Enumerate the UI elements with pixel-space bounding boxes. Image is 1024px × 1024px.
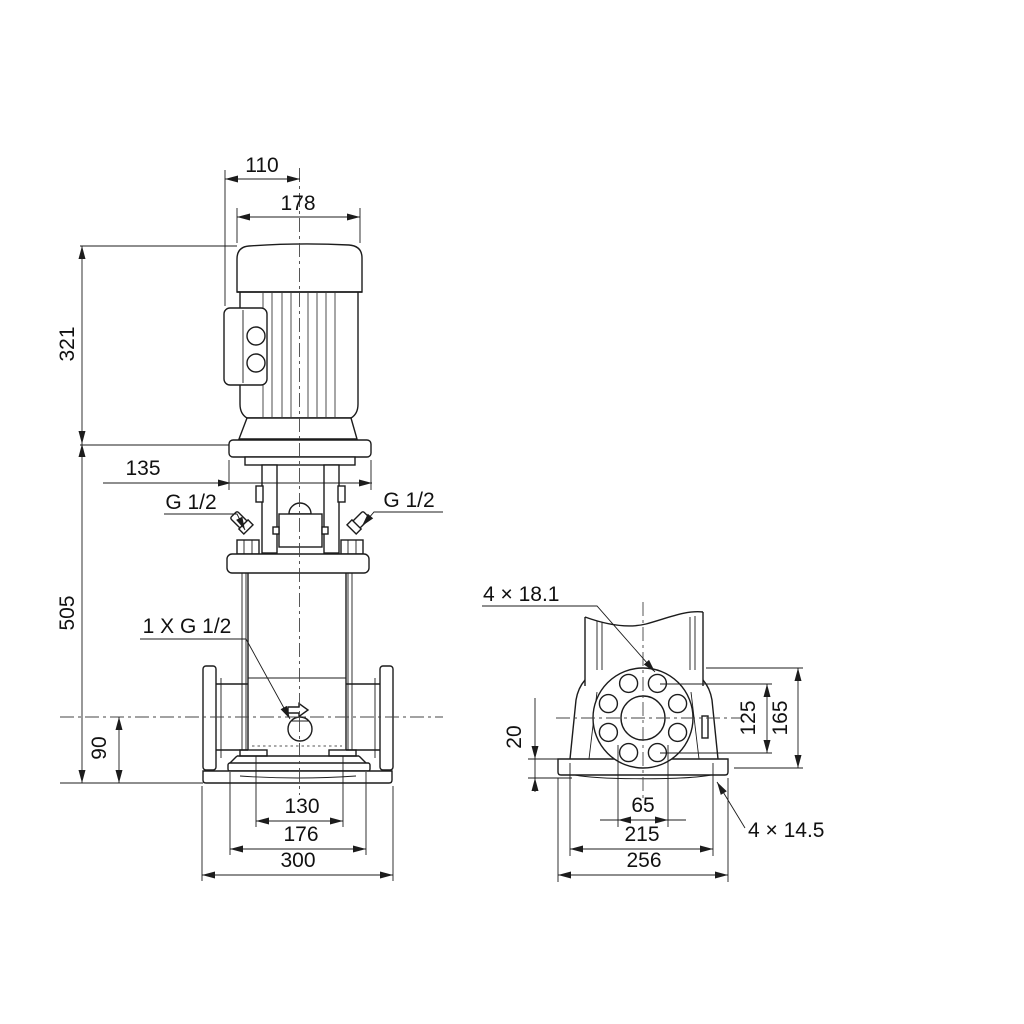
dim-port-height-90: 90 — [88, 717, 123, 783]
break-line — [585, 612, 703, 626]
coupling-dome — [289, 503, 311, 514]
dim-256-label: 256 — [626, 849, 661, 872]
staybolt-foot-left — [240, 750, 267, 756]
pump-base — [203, 756, 392, 783]
head-nut-left — [237, 540, 259, 554]
label-vent-left: G 1/2 — [164, 491, 245, 530]
coupling-block — [279, 514, 322, 547]
head-plate — [227, 554, 369, 573]
dim-90-label: 90 — [88, 736, 111, 759]
dim-base-plate-height-20: 20 — [503, 698, 572, 792]
bolt-hole — [620, 674, 638, 692]
bolt-hole — [648, 674, 666, 692]
dim-130-label: 130 — [284, 795, 319, 818]
dim-505-label: 505 — [56, 595, 79, 630]
head-nut-right — [341, 540, 363, 554]
dim-321-label: 321 — [56, 326, 79, 361]
drain-label: 1 X G 1/2 — [143, 615, 232, 638]
dim-178-label: 178 — [280, 192, 315, 215]
terminal-box — [224, 308, 267, 385]
cable-entry-top — [247, 327, 265, 345]
dim-motor-height-321: 321 — [56, 246, 237, 445]
drain-plug — [288, 704, 312, 742]
dim-135-label: 135 — [125, 457, 160, 480]
staybolt-foot-right — [329, 750, 356, 756]
flange-holes-label: 4 × 18.1 — [483, 583, 559, 606]
label-vent-right: G 1/2 — [362, 489, 443, 526]
dim-300-label: 300 — [280, 849, 315, 872]
dim-65-label: 65 — [631, 794, 654, 817]
side-view: 20 125 165 65 — [482, 583, 824, 882]
bolt-hole — [599, 723, 617, 741]
dim-176-label: 176 — [283, 823, 318, 846]
dim-165-label: 165 — [769, 700, 792, 735]
dim-110-label: 110 — [245, 154, 278, 177]
vent-right-label: G 1/2 — [383, 489, 434, 512]
motor-ribs — [263, 293, 335, 417]
cable-entry-bottom — [247, 354, 265, 372]
bolt-hole — [599, 695, 617, 713]
dim-20-label: 20 — [503, 725, 526, 748]
dim-215-label: 215 — [624, 823, 659, 846]
dim-125-label: 125 — [737, 700, 760, 735]
bolt-hole — [669, 723, 687, 741]
pump-dimensional-drawing: 110 178 321 505 — [0, 0, 1024, 1024]
side-tab — [702, 716, 708, 738]
bolt-hole — [620, 744, 638, 762]
vent-left-label: G 1/2 — [165, 491, 216, 514]
base-holes-label: 4 × 14.5 — [748, 819, 824, 842]
label-flange-holes: 4 × 18.1 — [482, 583, 655, 672]
pump-head — [227, 465, 371, 573]
flow-direction-arrow-icon — [288, 704, 308, 717]
label-base-holes: 4 × 14.5 — [717, 782, 824, 842]
motor-body-right — [351, 292, 358, 418]
front-view: 110 178 321 505 — [56, 154, 443, 881]
dim-motor-width-178: 178 — [237, 192, 360, 243]
stool-leg-right — [324, 465, 339, 553]
motor — [224, 244, 371, 465]
motor-flange — [229, 440, 371, 457]
base-plate — [203, 771, 392, 783]
stool-leg-left — [262, 465, 277, 553]
motor-flange-plate — [245, 457, 355, 465]
motor-skirt — [239, 418, 357, 439]
bolt-hole — [669, 695, 687, 713]
